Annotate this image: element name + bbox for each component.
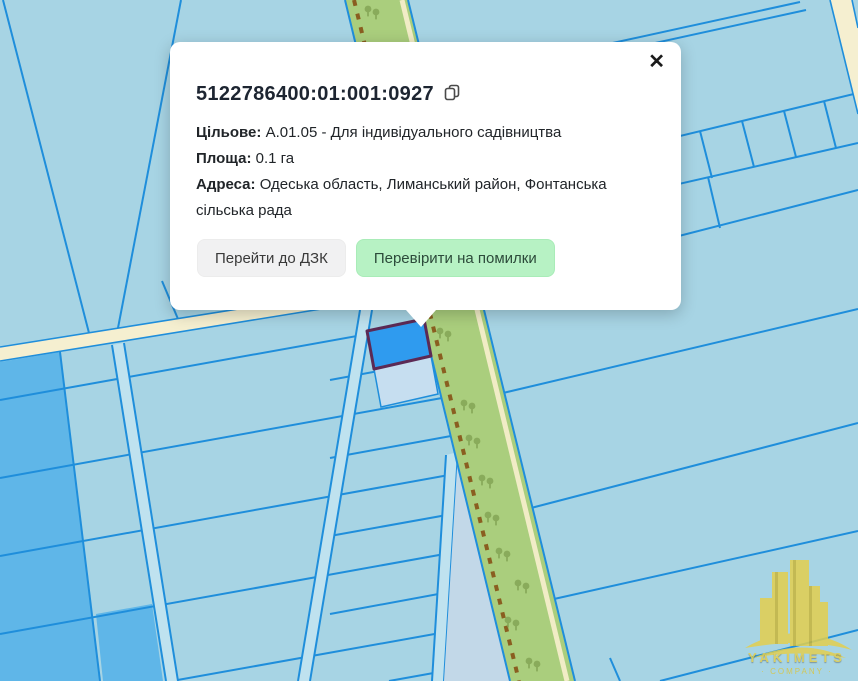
popup-fields: Цільове: А.01.05 - Для індивідуального с… [196, 120, 644, 224]
field-address: Адреса: Одеська область, Лиманський райо… [196, 172, 644, 224]
popup-buttons: Перейти до ДЗК Перевірити на помилки [197, 239, 555, 277]
cadastral-map-viewer: YAKIMETS · COMPANY · ✕ 5122786400:01:001… [0, 0, 858, 681]
field-area: Площа: 0.1 га [196, 146, 644, 172]
watermark-line1: YAKIMETS [748, 650, 846, 665]
popup-title-row: 5122786400:01:001:0927 [196, 82, 681, 106]
copy-icon[interactable] [444, 84, 460, 106]
goto-dzk-button[interactable]: Перейти до ДЗК [197, 239, 346, 277]
close-icon[interactable]: ✕ [648, 52, 665, 72]
cadastral-number: 5122786400:01:001:0927 [196, 83, 434, 106]
field-purpose: Цільове: А.01.05 - Для індивідуального с… [196, 120, 644, 146]
check-errors-button[interactable]: Перевірити на помилки [356, 239, 555, 277]
popup-arrow [406, 310, 436, 327]
parcel-info-popup: ✕ 5122786400:01:001:0927 Цільове: А.01.0… [170, 42, 681, 310]
watermark-line2: · COMPANY · [761, 667, 832, 676]
